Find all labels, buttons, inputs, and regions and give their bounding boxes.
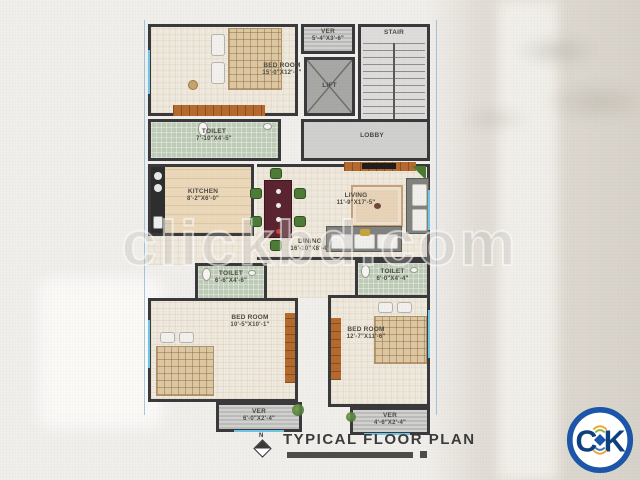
plate-icon: [276, 217, 281, 222]
room-label-bedroom-bottom-left: BED ROOM10'-5"X10'-1": [214, 314, 286, 330]
throw-pillow-icon: [360, 229, 370, 236]
dining-chair-icon: [294, 216, 306, 227]
sofa-cushion: [412, 209, 427, 231]
kitchen-sink-icon: [153, 216, 163, 229]
floor-plan: BED ROOM15'-0"X12'-1" VER5'-4"X3'-6" LIF…: [148, 10, 433, 425]
plan-title: TYPICAL FLOOR PLAN: [283, 431, 476, 448]
window-marker: [234, 430, 284, 432]
pillow-icon: [211, 62, 225, 84]
dimension-line-left: [144, 20, 145, 415]
window-marker: [428, 310, 430, 358]
dining-chair-icon: [250, 188, 262, 199]
room-label-toilet-bottom-left: TOILET6'-6"X4'-6": [195, 270, 267, 286]
compass-diamond: [253, 439, 271, 457]
window-marker: [428, 190, 430, 230]
sofa-cushion: [377, 234, 398, 249]
north-arrow-icon: N: [256, 442, 269, 455]
room-label-lobby: LOBBY: [342, 132, 402, 140]
pillow-icon: [378, 302, 393, 313]
room-label-bedroom-top-left: BED ROOM15'-0"X12'-1": [248, 62, 316, 78]
hallway: [260, 257, 355, 298]
dining-chair-icon: [250, 216, 262, 227]
wardrobe-icon: [285, 313, 295, 383]
room-label-kitchen: KITCHEN8'-2"X6'-0": [168, 188, 238, 204]
stair-rail: [393, 43, 395, 119]
room-label-veranda-bottom-left: VER6'-0"X2'-4": [216, 408, 302, 424]
pillow-icon: [160, 332, 175, 343]
window-marker: [148, 50, 150, 94]
logo-letter-c: C: [575, 425, 597, 458]
dining-chair-icon: [270, 168, 282, 179]
window-marker: [148, 320, 150, 368]
leaf-shadow-decor: [432, 0, 640, 170]
room-stair: [358, 24, 430, 124]
stove-burner-icon: [154, 172, 162, 180]
wash-basin-icon: [263, 123, 272, 130]
dining-chair-icon: [294, 188, 306, 199]
title-bar-end-square: [420, 451, 427, 458]
bed-icon: [228, 28, 282, 90]
room-label-living: LIVING11'-9"X17'-5": [328, 192, 384, 208]
sofa-icon: [406, 178, 429, 234]
bed-icon: [156, 346, 214, 396]
stair-flight-left: [363, 43, 393, 119]
sofa-cushion: [354, 234, 375, 249]
pillow-icon: [397, 302, 412, 313]
pillow-icon: [179, 332, 194, 343]
hallway: [148, 233, 260, 265]
side-table-icon: [188, 80, 198, 90]
wardrobe-icon: [173, 105, 265, 116]
dimension-line-right: [436, 20, 437, 415]
clickbd-logo: C K: [566, 406, 634, 474]
dining-table-icon: [264, 180, 292, 238]
stove-burner-icon: [154, 184, 162, 192]
room-label-bedroom-bottom-right: BED ROOM12'-7"X11'-6": [334, 326, 398, 342]
room-label-stair: STAIR: [358, 29, 430, 37]
bowl-icon: [276, 229, 281, 234]
plate-icon: [276, 189, 281, 194]
room-label-toilet-bottom-right: TOILET6'-0"X4'-4": [355, 268, 430, 284]
pillow-icon: [211, 34, 225, 56]
room-label-toilet-top: TOILET7'-10"X4'-5": [164, 128, 264, 144]
tv-icon: [362, 163, 396, 169]
north-label: N: [259, 433, 263, 439]
title-underline-bar: [287, 452, 413, 458]
clickbd-logo-icon: C K: [566, 406, 634, 474]
room-label-veranda-top: VER5'-4"X3'-6": [301, 28, 355, 44]
stair-flight-right: [395, 43, 425, 119]
logo-letter-k: K: [604, 425, 626, 458]
room-label-dining: DINING16'-10"X8'-4": [280, 238, 340, 254]
sofa-cushion: [412, 184, 427, 206]
room-label-veranda-bottom-right: VER4'-6"X2'-4": [350, 412, 430, 428]
plate-icon: [276, 203, 281, 208]
room-label-lift: LIFT: [304, 82, 355, 90]
